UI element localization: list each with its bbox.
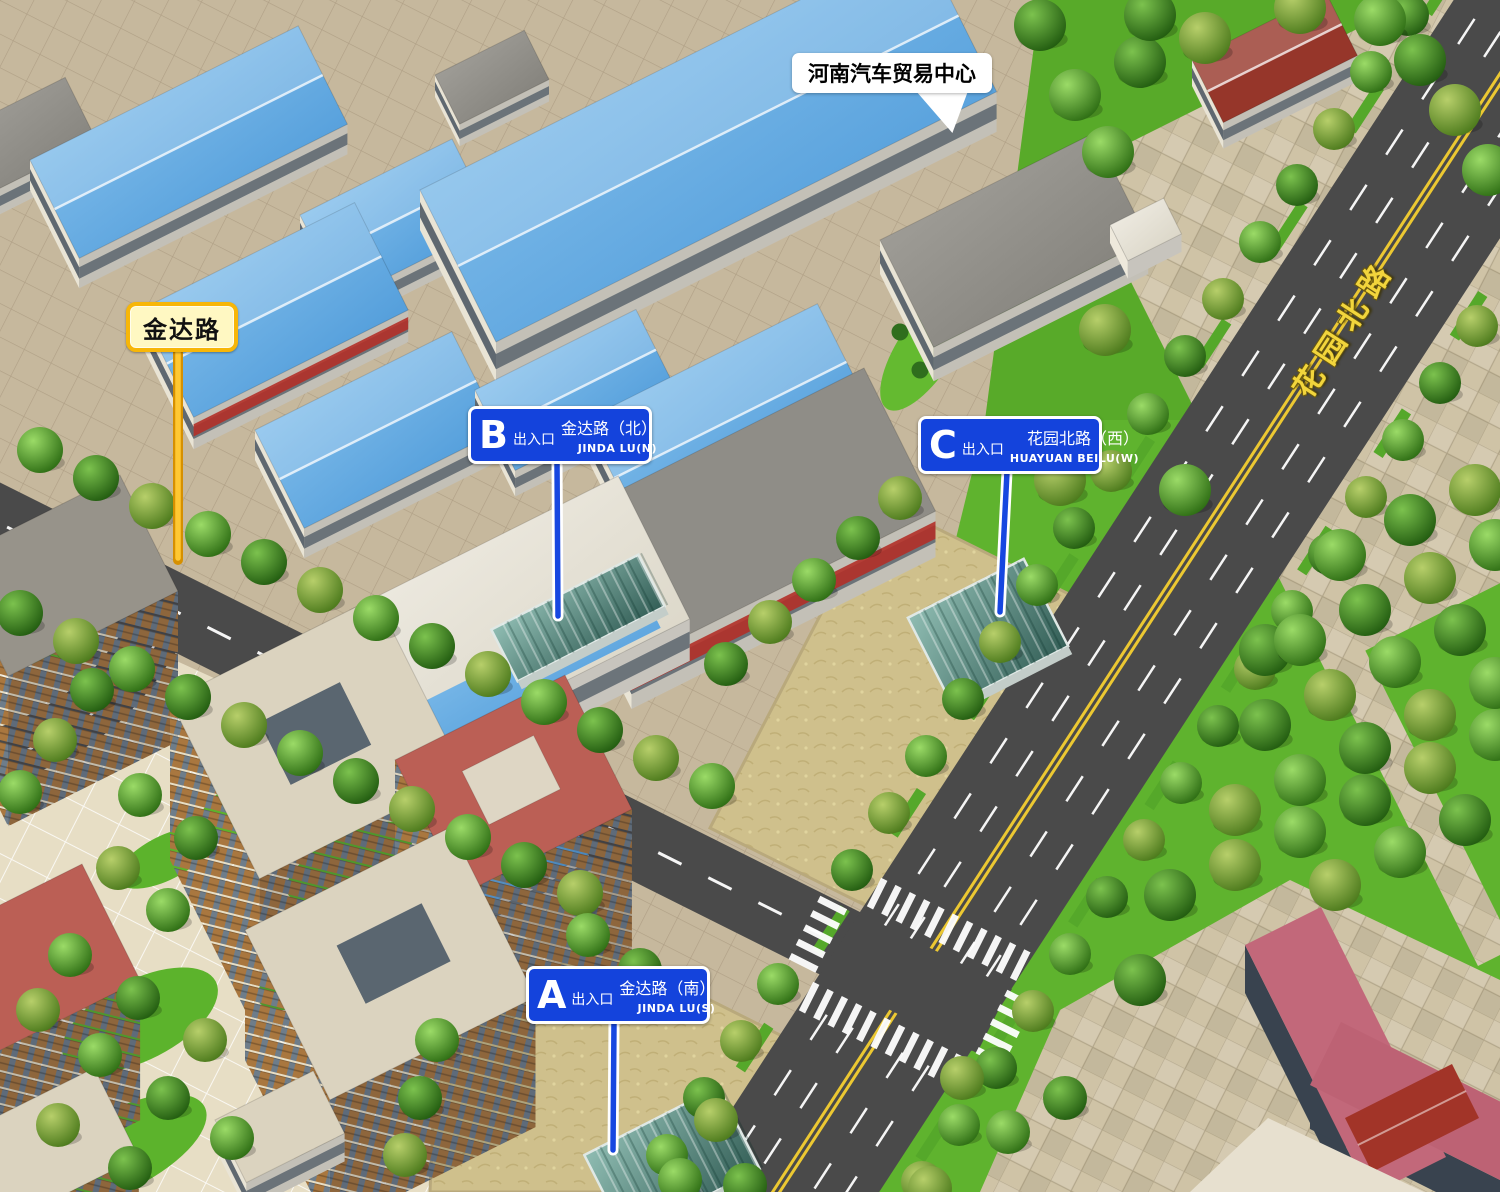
road-name-cn: 金达路（南） bbox=[619, 975, 715, 999]
entrance-letter: C bbox=[929, 427, 957, 463]
road-name-en: HUAYUAN BEILU(W) bbox=[1010, 452, 1139, 465]
aerial-map: 河南汽车贸易中心 金达路 A 出入口 金达路（南） JINDA LU(S) B … bbox=[0, 0, 1500, 1192]
entrance-sign-b: B 出入口 金达路（北） JINDA LU(N) bbox=[468, 406, 652, 464]
road-name-en: JINDA LU(N) bbox=[578, 442, 657, 455]
entrance-sign-c: C 出入口 花园北路（西） HUAYUAN BEILU(W) bbox=[918, 416, 1102, 474]
entrance-b-right: 金达路（北） JINDA LU(N) bbox=[561, 415, 657, 455]
entrance-letter: B bbox=[479, 417, 508, 453]
road-name-cn: 金达路（北） bbox=[561, 415, 657, 439]
entrance-label: 出入口 bbox=[513, 429, 555, 453]
road-name-en: JINDA LU(S) bbox=[638, 1002, 716, 1015]
entrance-a-left: A 出入口 bbox=[537, 977, 613, 1013]
entrance-a-right: 金达路（南） JINDA LU(S) bbox=[619, 975, 715, 1015]
entrance-c-right: 花园北路（西） HUAYUAN BEILU(W) bbox=[1010, 425, 1139, 465]
tree bbox=[1449, 464, 1500, 516]
entrance-label: 出入口 bbox=[571, 989, 613, 1013]
road-name-cn: 花园北路（西） bbox=[1027, 425, 1139, 449]
entrance-b-left: B 出入口 bbox=[479, 417, 555, 453]
entrance-c-left: C 出入口 bbox=[929, 427, 1004, 463]
map-scenery bbox=[0, 0, 1500, 1192]
jinda-road-sign: 金达路 bbox=[126, 302, 238, 352]
building-callout: 河南汽车贸易中心 bbox=[792, 53, 992, 93]
entrance-label: 出入口 bbox=[962, 439, 1004, 463]
tree bbox=[1354, 0, 1408, 46]
entrance-sign-a: A 出入口 金达路（南） JINDA LU(S) bbox=[526, 966, 710, 1024]
entrance-letter: A bbox=[537, 977, 566, 1013]
